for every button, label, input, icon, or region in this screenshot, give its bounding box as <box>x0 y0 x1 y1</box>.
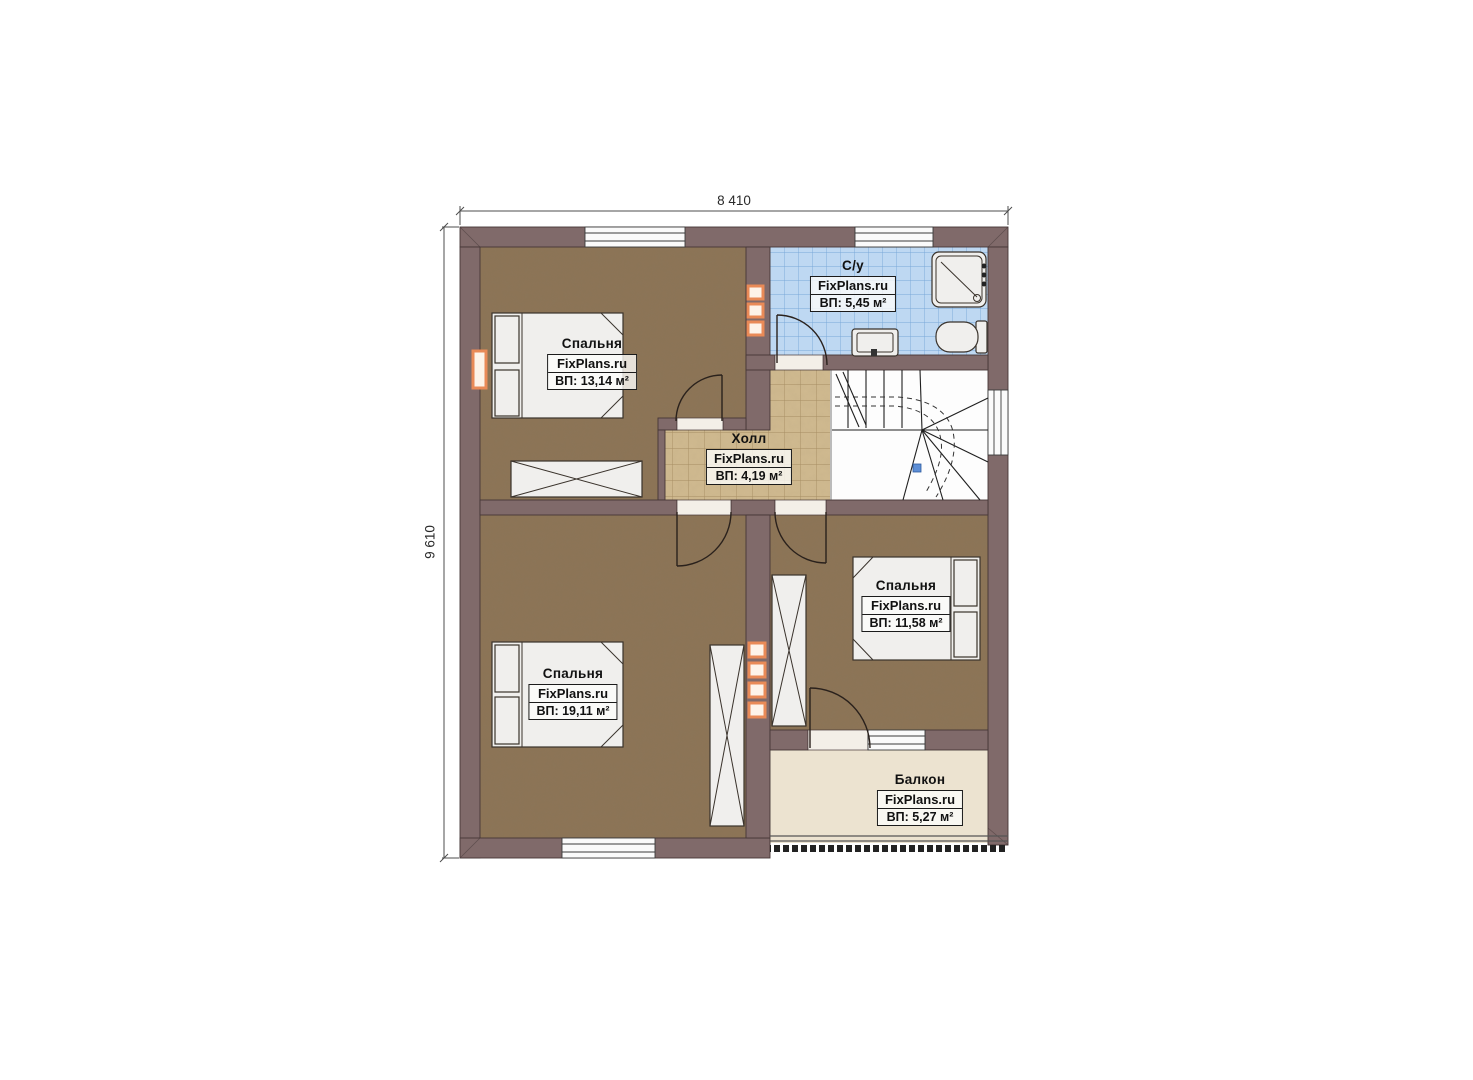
wall-center-upper <box>746 247 770 430</box>
room-area: ВП: 5,45 м² <box>811 295 895 311</box>
vent-icon <box>749 663 765 677</box>
room-area: ВП: 11,58 м² <box>862 615 949 631</box>
room-name: Холл <box>706 431 792 446</box>
room-label-hall: Холл FixPlans.ru ВП: 4,19 м² <box>706 431 792 485</box>
dimension-width-label: 8 410 <box>717 193 751 208</box>
stairwell-floor <box>832 370 988 500</box>
vent-icon <box>748 286 763 299</box>
wall-bath-south-right <box>823 355 988 370</box>
wall-bedroom-door-right <box>723 418 746 430</box>
window-icon <box>585 227 685 247</box>
room-area: ВП: 19,11 м² <box>529 703 616 719</box>
wall-balcony-right <box>925 730 988 750</box>
room-name: С/у <box>810 258 896 273</box>
room-label-bathroom: С/у FixPlans.ru ВП: 5,45 м² <box>810 258 896 312</box>
window-icon <box>988 390 1008 455</box>
wall-bedroom-door-left <box>658 418 677 430</box>
wall-middle-right <box>826 500 988 515</box>
fixplans-watermark: FixPlans.ru <box>862 597 949 615</box>
window-icon <box>868 730 925 750</box>
floor-plan-drawing <box>0 0 1473 1080</box>
wall-middle-left <box>480 500 677 515</box>
window-icon <box>562 838 655 858</box>
wall-middle-center <box>731 500 775 515</box>
vent-icon <box>748 322 763 335</box>
wall-hall-west <box>658 430 665 500</box>
fixplans-watermark: FixPlans.ru <box>548 355 636 373</box>
room-name: Спальня <box>547 336 637 351</box>
wall-balcony-left <box>770 730 808 750</box>
dimension-height-label: 9 610 <box>423 525 438 559</box>
floor-plan-page: 8 410 9 610 Спальня FixPlans.ru ВП: 13,1… <box>0 0 1473 1080</box>
room-name: Спальня <box>861 578 950 593</box>
shower-icon <box>932 252 987 307</box>
room-name: Балкон <box>877 772 963 787</box>
stair-marker <box>913 464 921 472</box>
fixplans-watermark: FixPlans.ru <box>878 791 962 809</box>
fixplans-watermark: FixPlans.ru <box>529 685 616 703</box>
room-label-balcony: Балкон FixPlans.ru ВП: 5,27 м² <box>877 772 963 826</box>
room-label-bedroom-bottom-left: Спальня FixPlans.ru ВП: 19,11 м² <box>528 666 617 720</box>
vent-icon <box>748 304 763 317</box>
fixplans-watermark: FixPlans.ru <box>707 450 791 468</box>
sink-icon <box>852 329 898 356</box>
room-info-box: FixPlans.ru ВП: 5,45 м² <box>810 276 896 312</box>
fixplans-watermark: FixPlans.ru <box>811 277 895 295</box>
wardrobe-icon <box>511 461 642 497</box>
room-info-box: FixPlans.ru ВП: 11,58 м² <box>861 596 950 632</box>
room-name: Спальня <box>528 666 617 681</box>
room-info-box: FixPlans.ru ВП: 19,11 м² <box>528 684 617 720</box>
vent-icon <box>749 703 765 717</box>
room-area: ВП: 13,14 м² <box>548 373 636 389</box>
wardrobe-icon <box>772 575 806 726</box>
room-area: ВП: 4,19 м² <box>707 468 791 484</box>
room-info-box: FixPlans.ru ВП: 4,19 м² <box>706 449 792 485</box>
wall-right <box>988 247 1008 845</box>
room-area: ВП: 5,27 м² <box>878 809 962 825</box>
room-label-bedroom-top-left: Спальня FixPlans.ru ВП: 13,14 м² <box>547 336 637 390</box>
vent-icon <box>749 643 765 657</box>
room-info-box: FixPlans.ru ВП: 13,14 м² <box>547 354 637 390</box>
wall-bath-south-left <box>746 355 775 370</box>
window-icon <box>855 227 933 247</box>
room-info-box: FixPlans.ru ВП: 5,27 м² <box>877 790 963 826</box>
wall-left <box>460 247 480 858</box>
wardrobe-icon <box>710 645 744 826</box>
room-label-bedroom-bottom-right: Спальня FixPlans.ru ВП: 11,58 м² <box>861 578 950 632</box>
vent-icon <box>749 683 765 697</box>
vent-icon <box>473 351 486 388</box>
toilet-icon <box>936 321 987 353</box>
